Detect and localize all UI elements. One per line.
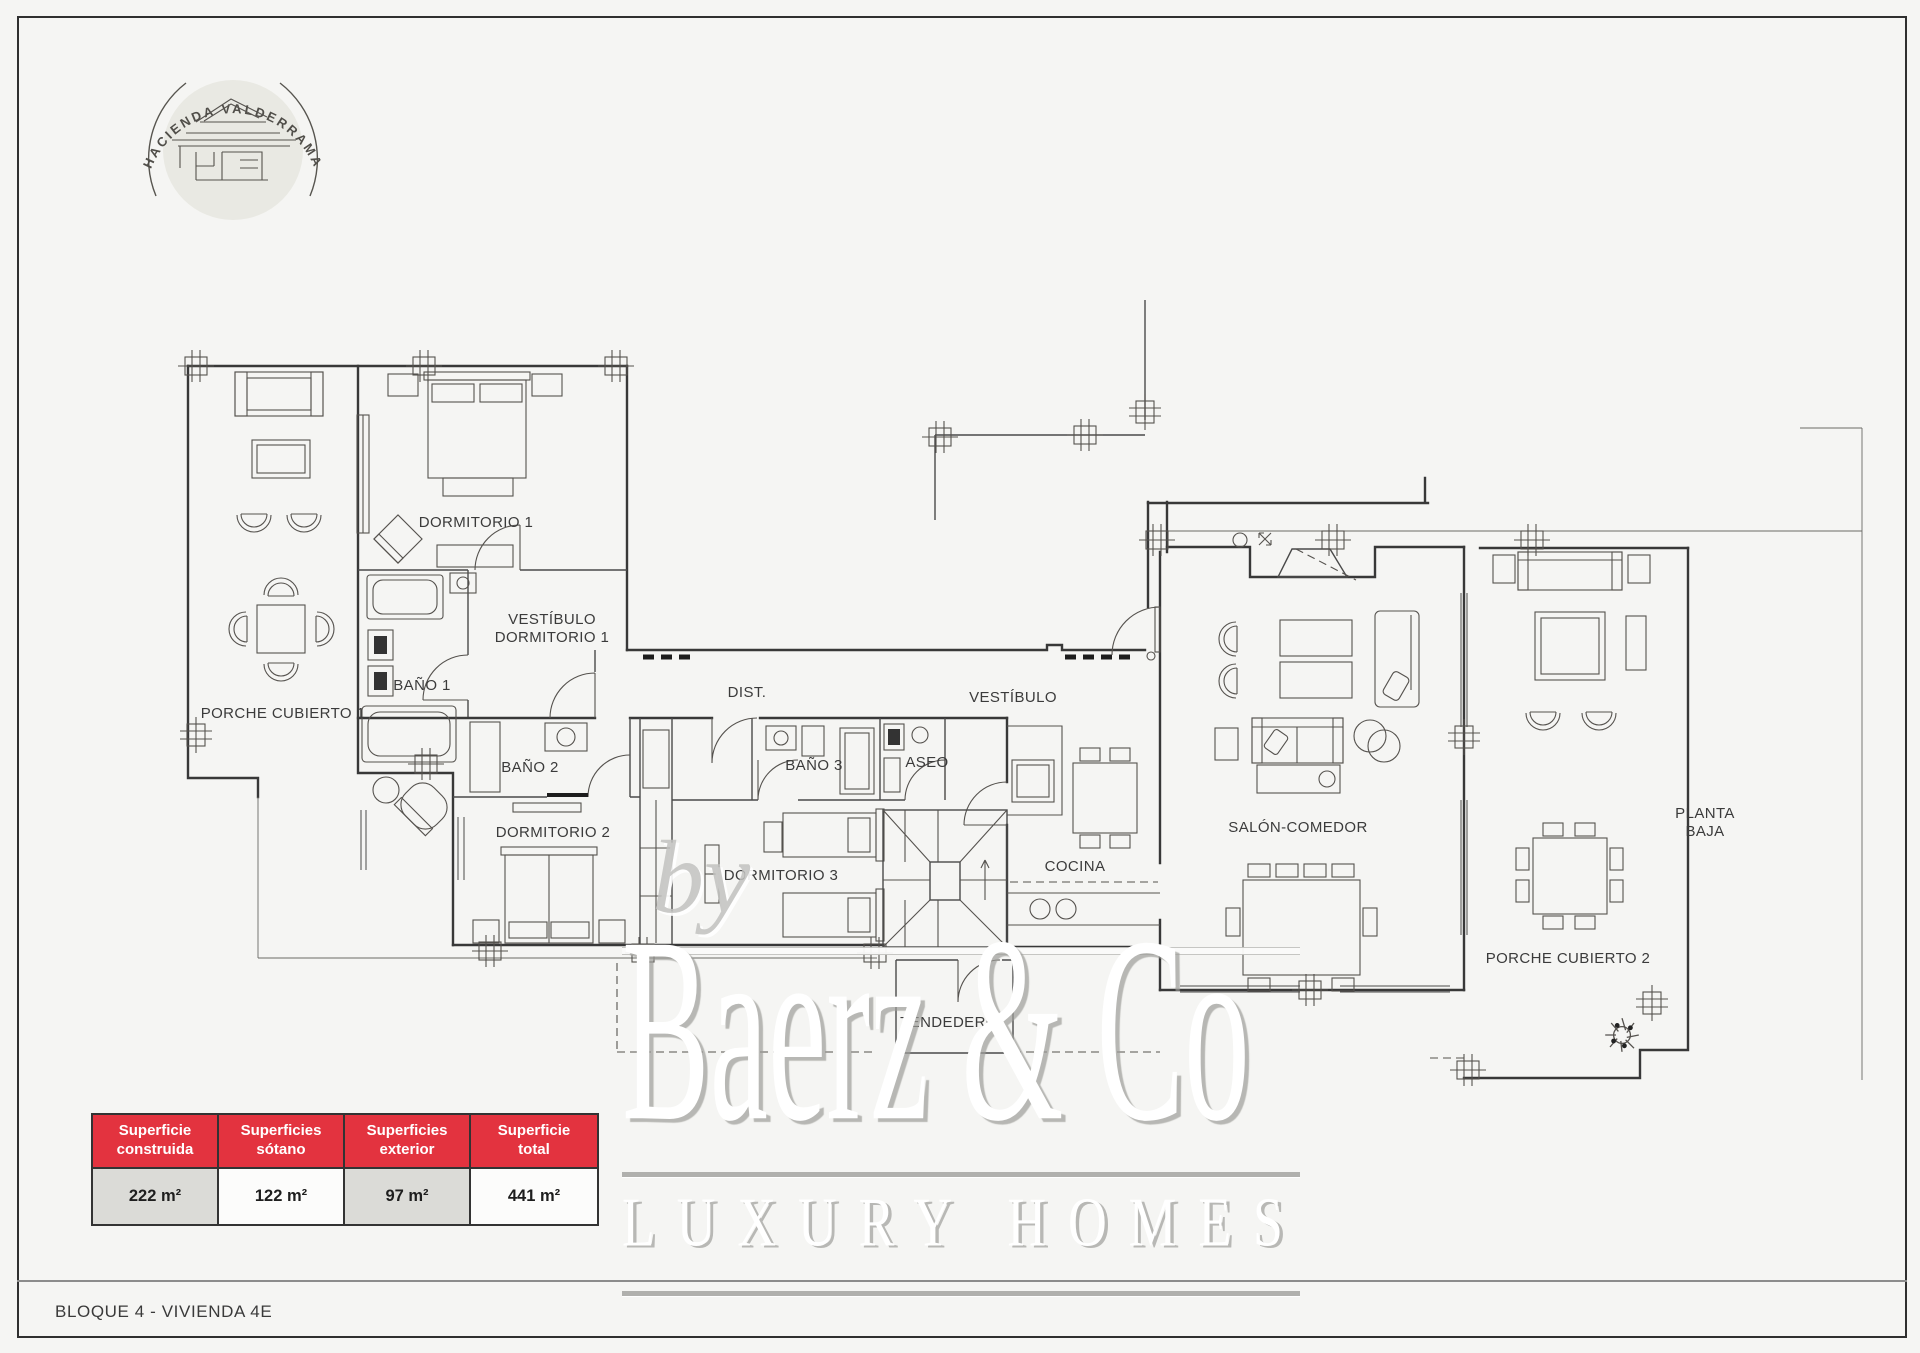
plant-icon [1605, 1018, 1639, 1052]
bed-dorm1 [424, 372, 530, 496]
label-porche2: PORCHE CUBIERTO 2 [1486, 950, 1651, 967]
label-cocina: COCINA [1045, 858, 1106, 875]
salon-furniture [1215, 611, 1419, 991]
footer-divider [17, 1280, 1907, 1282]
label-planta-l1: PLANTA [1675, 805, 1735, 822]
porch1-sofa [235, 372, 323, 416]
header-line: Superficie [498, 1122, 571, 1141]
table-value: 122 m² [219, 1167, 343, 1224]
label-planta-l2: BAJA [1685, 823, 1724, 840]
label-bano3: BAÑO 3 [785, 757, 842, 774]
table-header: Superficie total [471, 1115, 597, 1167]
kitchen [1007, 726, 1160, 925]
table-value: 222 m² [93, 1167, 217, 1224]
label-dormitorio1: DORMITORIO 1 [419, 514, 534, 531]
table-column-exterior: Superficies exterior 97 m² [345, 1115, 471, 1224]
floorplan-page: HACIENDA VALDERRAMA [0, 0, 1920, 1353]
header-line: total [518, 1141, 550, 1160]
bed-dorm2 [501, 847, 597, 943]
porch1-coffee-table [252, 440, 310, 478]
label-bano1: BAÑO 1 [393, 677, 450, 694]
label-bano2: BAÑO 2 [501, 759, 558, 776]
label-vestibulo: VESTÍBULO [969, 689, 1057, 706]
table-header: Superficies exterior [345, 1115, 469, 1167]
surface-area-table: Superficie construida 222 m² Superficies… [91, 1113, 599, 1226]
header-line: sótano [256, 1141, 305, 1160]
table-header: Superficies sótano [219, 1115, 343, 1167]
table-value: 441 m² [471, 1167, 597, 1224]
furniture [229, 372, 1650, 1052]
table-header: Superficie construida [93, 1115, 217, 1167]
label-salon: SALÓN-COMEDOR [1228, 819, 1367, 836]
label-aseo: ASEO [905, 754, 948, 771]
porch1-dining [229, 578, 334, 681]
table-column-sotano: Superficies sótano 122 m² [219, 1115, 345, 1224]
header-line: Superficies [367, 1122, 448, 1141]
label-dormitorio3: DORMITORIO 3 [724, 867, 839, 884]
porch2-furniture [1493, 552, 1650, 1052]
header-line: Superficies [241, 1122, 322, 1141]
label-vestibulo-d1-l1: VESTÍBULO [508, 611, 596, 628]
label-porche1: PORCHE CUBIERTO 1 [201, 705, 366, 722]
stairs [883, 810, 1007, 947]
hacienda-valderrama-logo: HACIENDA VALDERRAMA [140, 80, 326, 220]
label-dormitorio2: DORMITORIO 2 [496, 824, 611, 841]
table-column-construida: Superficie construida 222 m² [93, 1115, 219, 1224]
label-vestibulo-d1-l2: DORMITORIO 1 [495, 629, 610, 646]
table-column-total: Superficie total 441 m² [471, 1115, 597, 1224]
label-dist: DIST. [728, 684, 767, 701]
table-value: 97 m² [345, 1167, 469, 1224]
header-line: Superficie [119, 1122, 192, 1141]
header-line: exterior [379, 1141, 434, 1160]
label-tendedero: TENDEDERO [900, 1014, 998, 1031]
footer-label: BLOQUE 4 - VIVIENDA 4E [55, 1302, 272, 1322]
header-line: construida [117, 1141, 194, 1160]
